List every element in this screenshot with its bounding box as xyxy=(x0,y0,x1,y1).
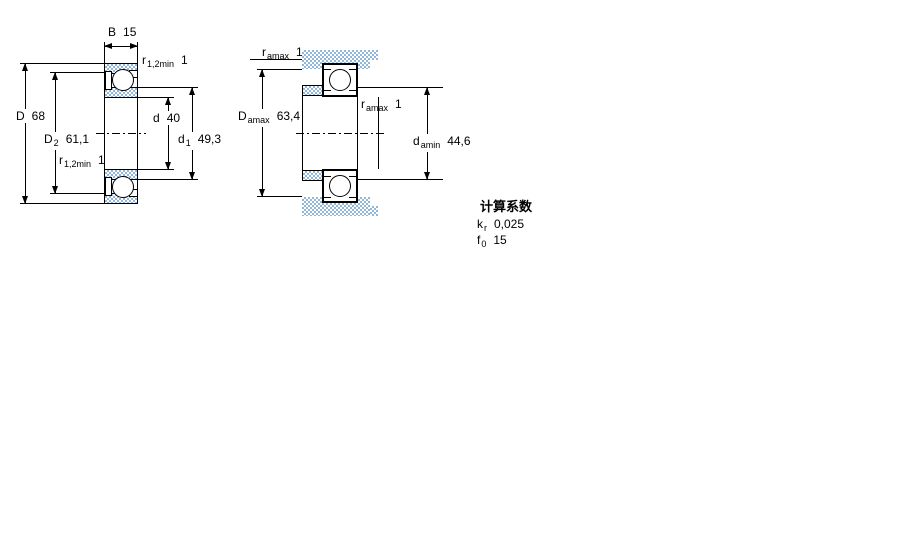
arrowhead-D2-down xyxy=(52,186,58,194)
bore-diameter-label-d: d40 xyxy=(151,111,182,125)
extension-line-D-bottom xyxy=(20,203,104,204)
race-line xyxy=(324,69,331,70)
ball-top-right-drawing xyxy=(329,69,351,91)
arrowhead-d-up xyxy=(165,97,171,105)
arrowhead-Da-up xyxy=(259,69,265,77)
arrowhead-da-up xyxy=(424,87,430,95)
shoulder-diameter-label-d1: d149,3 xyxy=(176,132,223,150)
race-line xyxy=(349,90,356,91)
race-line xyxy=(324,90,331,91)
width-dimension-label-B: B15 xyxy=(108,25,136,39)
arrowhead-D-down xyxy=(22,196,28,204)
centerline-left-drawing xyxy=(96,133,146,134)
housing-block-top-step xyxy=(370,50,378,60)
arrowhead-d1-up xyxy=(189,87,195,95)
calculation-factor-f0: f015 xyxy=(477,233,507,251)
dimension-line-d xyxy=(168,97,169,170)
arrowhead-d1-down xyxy=(189,172,195,180)
extension-line-D-top xyxy=(20,63,104,64)
centerline-right-drawing xyxy=(296,133,384,134)
arrowhead-B-left xyxy=(104,43,112,49)
extension-line-D2-top xyxy=(50,72,104,73)
bearing-dimension-drawing: B15 D68 D261,1 d40 xyxy=(0,0,900,560)
shaft-shoulder-top xyxy=(302,85,323,96)
arrowhead-d-down xyxy=(165,162,171,170)
dimension-line-Da xyxy=(262,69,263,197)
race-line xyxy=(349,176,356,177)
fillet-radius-label-ra-mid: ramax1 xyxy=(361,97,402,115)
shaft-abutment-diameter-label-da: damin44,6 xyxy=(411,134,473,152)
extension-line-D2-bottom xyxy=(50,193,104,194)
arrowhead-da-down xyxy=(424,172,430,180)
fillet-radius-label-ra-top: ramax1 xyxy=(262,45,303,63)
extension-line-da-bottom xyxy=(358,179,443,180)
race-line xyxy=(349,69,356,70)
race-line xyxy=(349,197,356,198)
ball-bottom-right-drawing xyxy=(329,175,351,197)
fillet-radius-label-mid: r1,2min1 xyxy=(59,153,105,171)
calculation-factors-title: 计算系数 xyxy=(480,196,532,215)
ball-bottom xyxy=(112,176,134,198)
arrowhead-Da-down xyxy=(259,189,265,197)
race-line xyxy=(324,197,331,198)
fillet-radius-label-top: r1,2min1 xyxy=(142,53,188,71)
arrowhead-B-right xyxy=(130,43,138,49)
recess-diameter-label-D2: D261,1 xyxy=(42,132,91,150)
dimension-line-D xyxy=(25,63,26,204)
extension-line-da-top xyxy=(358,87,443,88)
outer-diameter-label-D: D68 xyxy=(14,109,47,123)
housing-abutment-diameter-label-Da: Damax63,4 xyxy=(236,109,302,127)
arrowhead-D2-up xyxy=(52,72,58,80)
shield-bottom xyxy=(105,177,112,196)
ball-top xyxy=(112,69,134,91)
race-line xyxy=(324,176,331,177)
housing-block-bottom-step xyxy=(370,206,378,216)
arrowhead-D-up xyxy=(22,63,28,71)
shield-top xyxy=(105,71,112,90)
shaft-shoulder-bottom xyxy=(302,170,323,181)
